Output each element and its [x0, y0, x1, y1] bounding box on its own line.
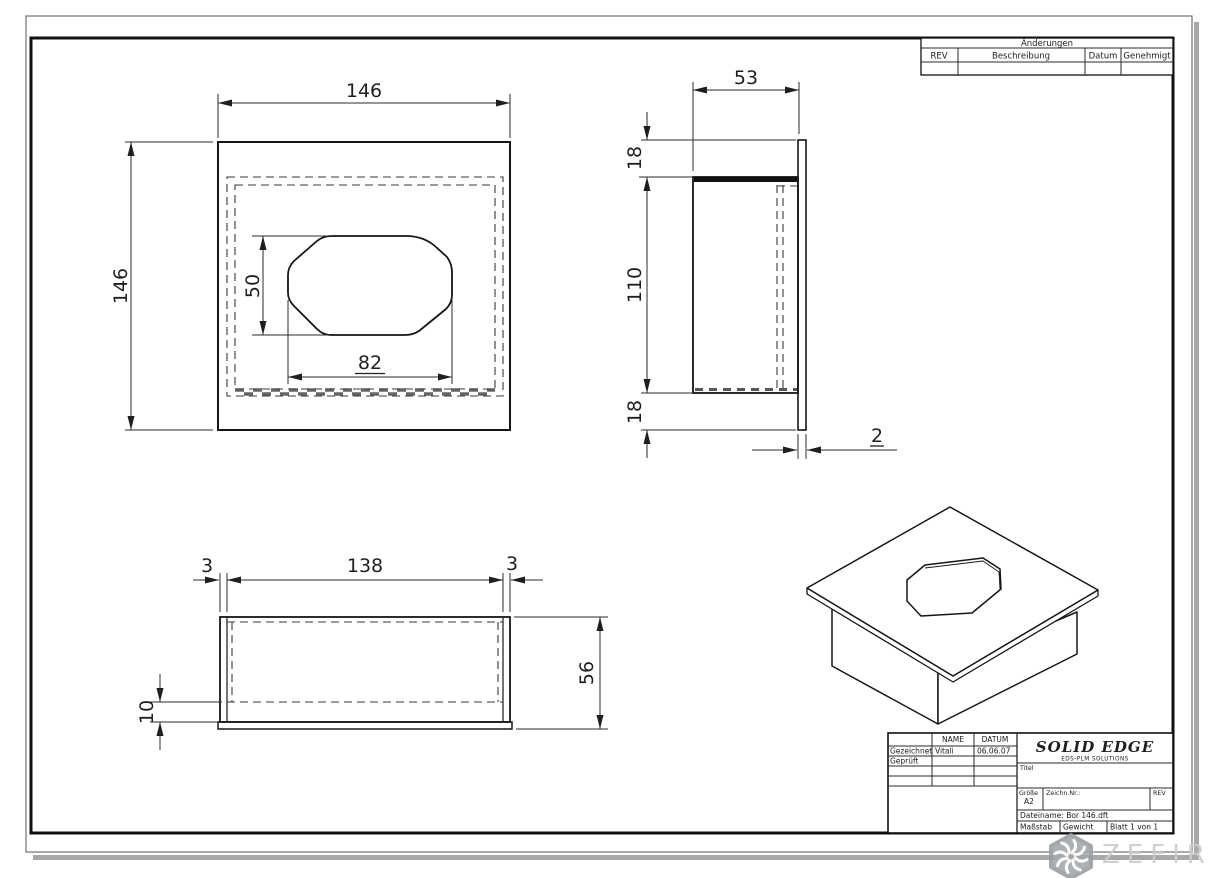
revision-table: Änderungen REV Beschreibung Datum Genehm… — [921, 38, 1173, 75]
revision-col-beschreibung: Beschreibung — [992, 52, 1050, 62]
title-gezeichnet-name: Vitali — [935, 747, 954, 756]
title-massstab-label: Maßstab — [1020, 823, 1052, 832]
title-gewicht-label: Gewicht — [1063, 823, 1094, 832]
title-groesse-label: Größe — [1019, 790, 1038, 797]
dim-side-thickness: 2 — [871, 425, 883, 447]
dim-bottom-height: 56 — [576, 661, 598, 685]
dim-bottom-flange: 10 — [136, 700, 158, 724]
title-gezeichnet-datum: 06.06.07 — [977, 747, 1011, 756]
solid-edge-logo-sub: EDS-PLM SOLUTIONS — [1061, 757, 1129, 763]
title-col-name: NAME — [942, 735, 964, 744]
watermark: ZEFIRE — [1051, 835, 1208, 878]
solid-edge-logo: SOLID EDGE — [1036, 738, 1154, 756]
dim-side-height: 110 — [624, 267, 646, 303]
dim-bottom-wall-right: 3 — [506, 553, 518, 575]
inner-frame — [31, 38, 1173, 833]
watermark-text: ZEFIRE — [1102, 840, 1208, 870]
dim-side-depth: 53 — [734, 67, 758, 89]
dim-front-width: 146 — [346, 80, 382, 102]
sheet-shadow-right — [1194, 22, 1199, 860]
title-titel-label: Titel — [1019, 765, 1034, 772]
title-zeichnnr-label: Zeichn.Nr.: — [1046, 790, 1080, 797]
title-block: NAME DATUM Gezeichnet Vitali 06.06.07 Ge… — [888, 733, 1173, 833]
revision-col-genehmigt: Genehmigt — [1123, 52, 1171, 62]
dim-front-height: 146 — [110, 268, 132, 304]
title-rev-label: REV — [1153, 790, 1166, 797]
title-groesse-value: A2 — [1024, 797, 1034, 806]
drawing-sheet: 146 146 50 82 — [0, 0, 1208, 878]
watermark-badge — [1051, 835, 1091, 878]
title-col-datum: DATUM — [982, 735, 1009, 744]
title-gezeichnet-label: Gezeichnet — [890, 747, 932, 756]
revision-col-rev: REV — [930, 52, 947, 62]
dim-bottom-inner-width: 138 — [347, 555, 383, 577]
revision-table-title: Änderungen — [1021, 38, 1073, 49]
dim-front-hole-height: 50 — [242, 274, 264, 298]
sheet-shadow-bottom — [33, 855, 1199, 860]
revision-col-datum: Datum — [1089, 52, 1118, 62]
dim-side-bottom: 18 — [624, 400, 646, 424]
dim-bottom-wall-left: 3 — [201, 555, 213, 577]
title-geprueft-label: Geprüft — [890, 757, 919, 766]
dim-side-top: 18 — [624, 146, 646, 170]
title-dateiname: Dateiname: Bor 146.dft — [1020, 811, 1108, 820]
title-blatt-label: Blatt 1 von 1 — [1110, 823, 1158, 832]
dim-front-hole-width: 82 — [358, 352, 382, 374]
